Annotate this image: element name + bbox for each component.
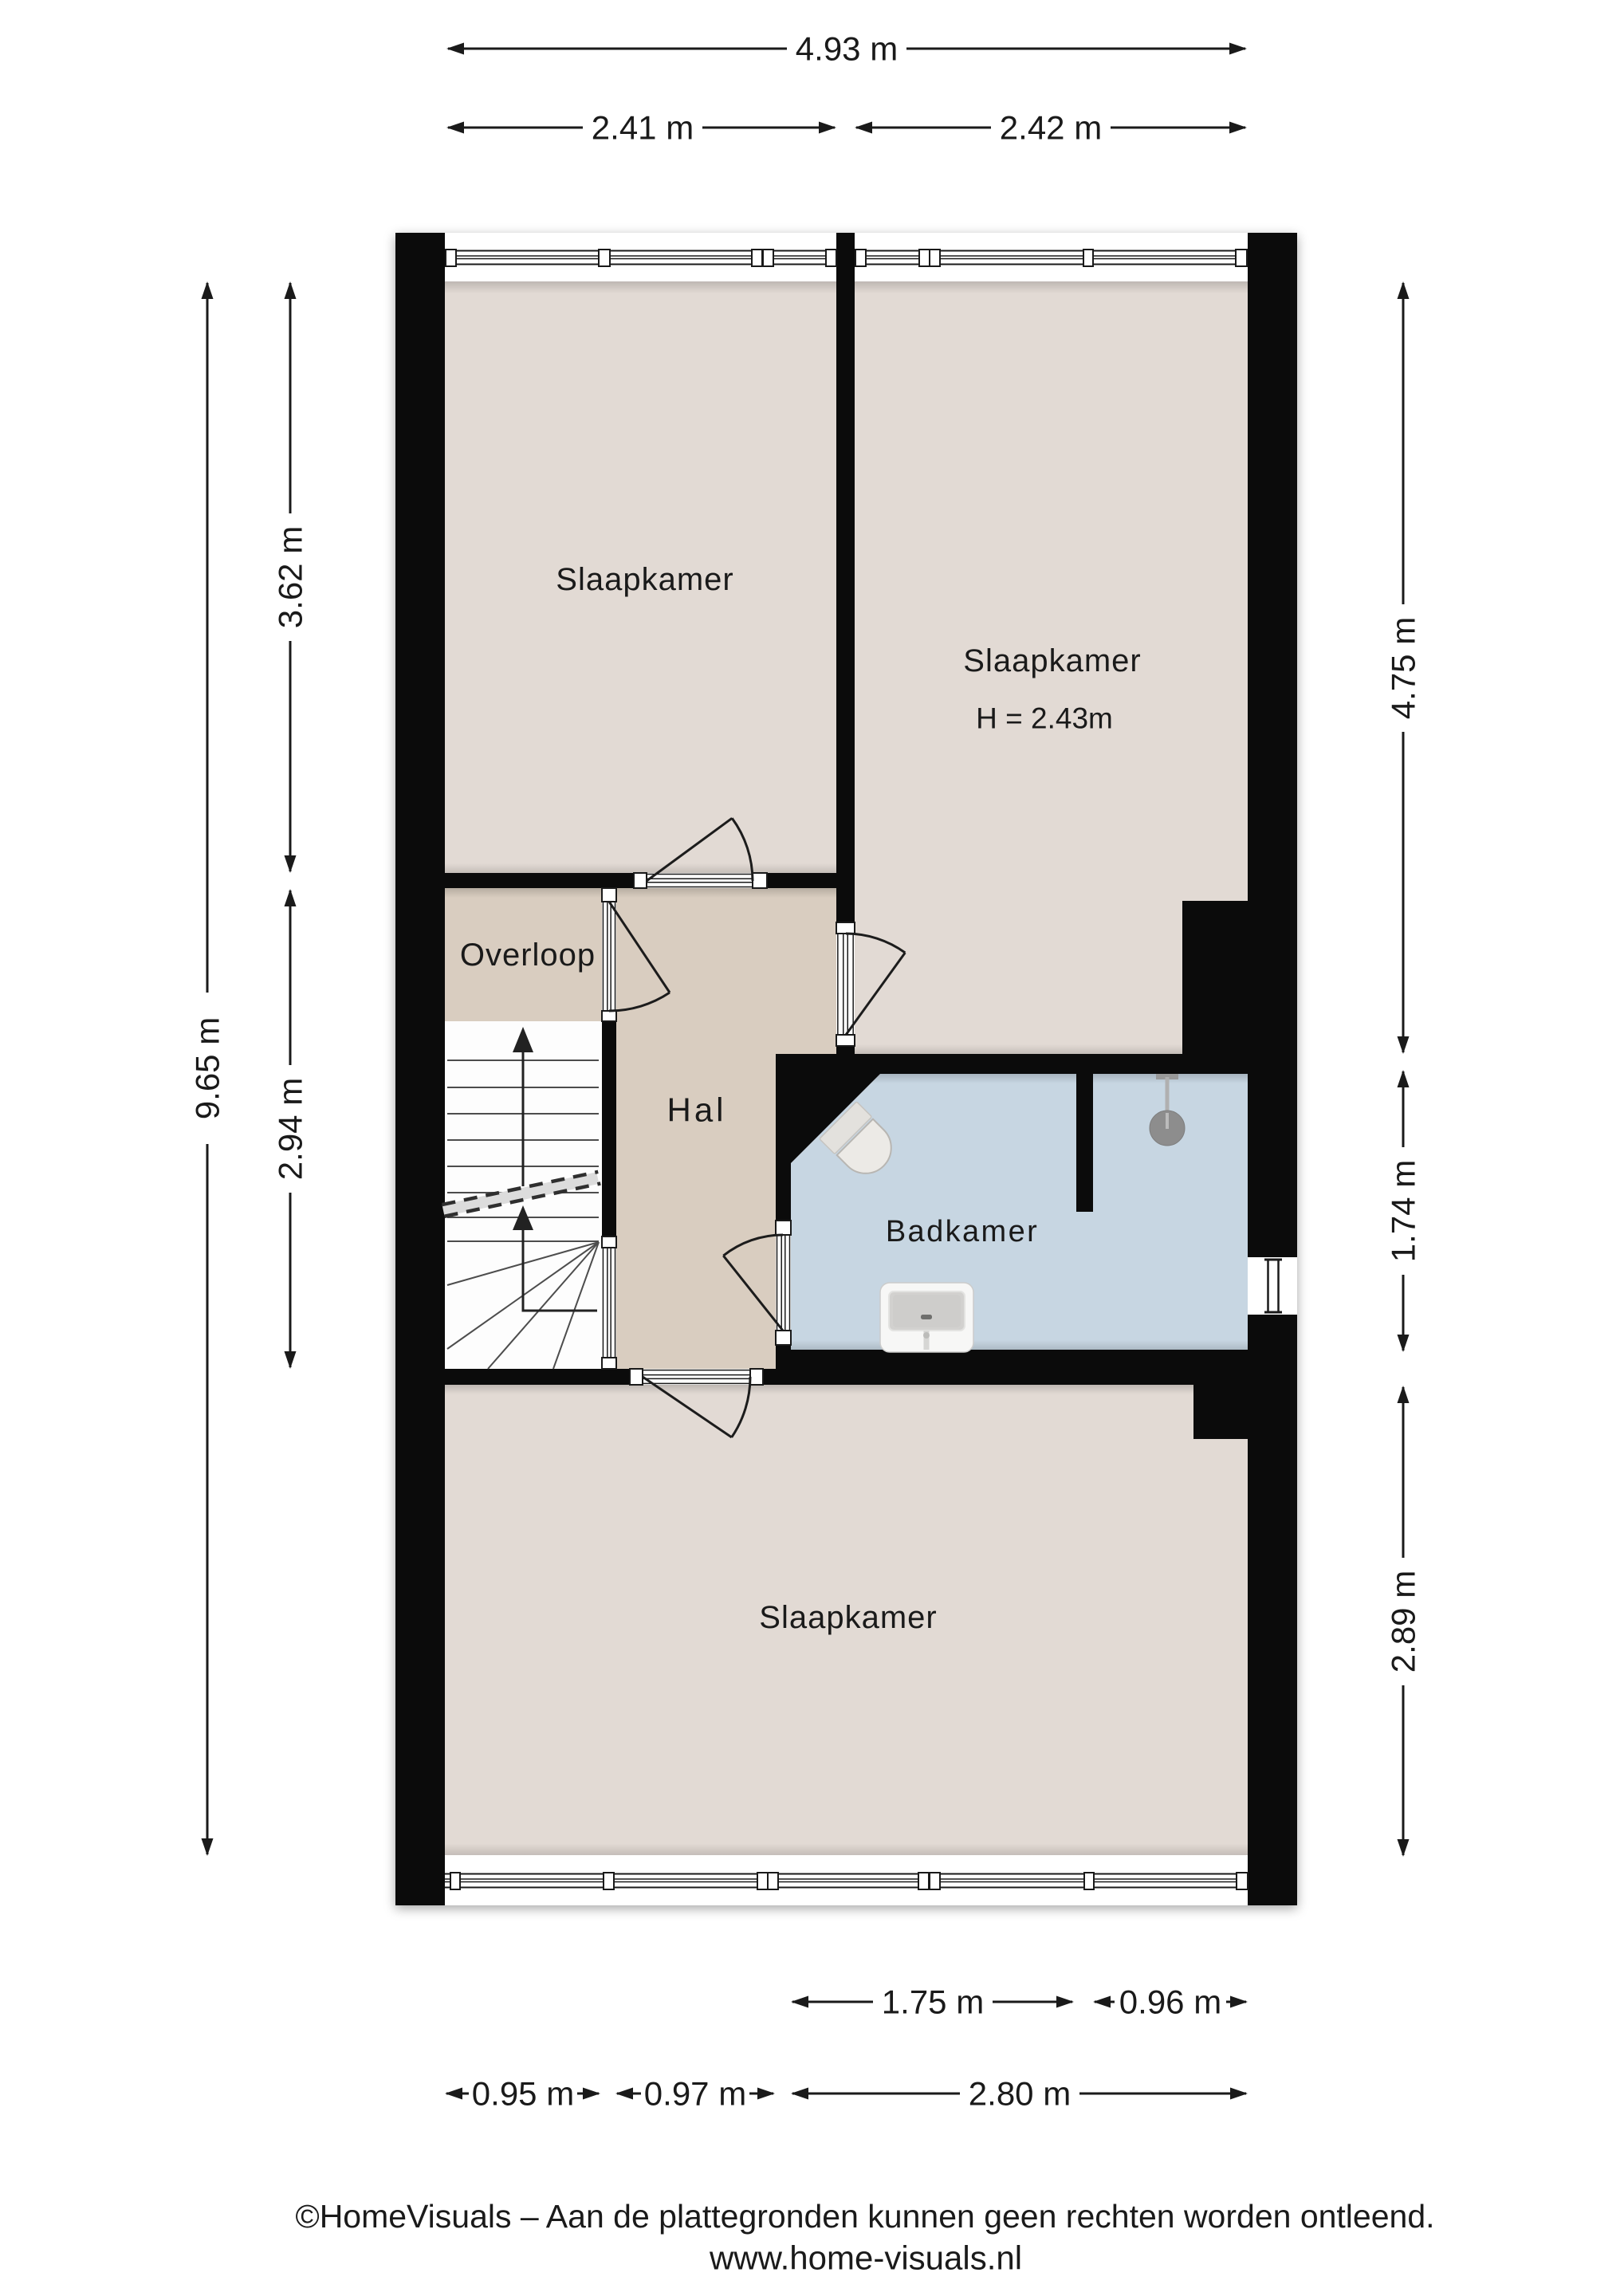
svg-text:Overloop: Overloop [460, 938, 596, 973]
svg-text:www.home-visuals.nl: www.home-visuals.nl [709, 2239, 1022, 2277]
svg-text:2.80 m: 2.80 m [969, 2075, 1071, 2113]
svg-text:0.95 m: 0.95 m [472, 2075, 574, 2113]
svg-text:0.97 m: 0.97 m [644, 2075, 746, 2113]
svg-text:2.94 m: 2.94 m [272, 1078, 309, 1180]
svg-text:Slaapkamer: Slaapkamer [963, 643, 1141, 678]
svg-text:2.89 m: 2.89 m [1385, 1571, 1422, 1673]
svg-text:9.65 m: 9.65 m [189, 1017, 226, 1119]
svg-text:1.74 m: 1.74 m [1385, 1160, 1422, 1262]
svg-text:2.42 m: 2.42 m [1000, 109, 1102, 147]
svg-text:Slaapkamer: Slaapkamer [759, 1600, 937, 1635]
svg-text:Badkamer: Badkamer [886, 1215, 1039, 1248]
svg-text:3.62 m: 3.62 m [272, 526, 309, 628]
svg-text:1.75 m: 1.75 m [882, 1983, 984, 2021]
svg-text:Hal: Hal [667, 1091, 726, 1129]
svg-text:4.75 m: 4.75 m [1385, 617, 1422, 719]
svg-text:4.93 m: 4.93 m [796, 30, 898, 68]
svg-text:0.96 m: 0.96 m [1119, 1983, 1221, 2021]
svg-text:Slaapkamer: Slaapkamer [556, 562, 733, 597]
svg-text:©HomeVisuals – Aan de plattegr: ©HomeVisuals – Aan de plattegronden kunn… [295, 2198, 1434, 2235]
svg-text:2.41 m: 2.41 m [592, 109, 694, 147]
svg-text:H = 2.43m: H = 2.43m [976, 702, 1113, 735]
